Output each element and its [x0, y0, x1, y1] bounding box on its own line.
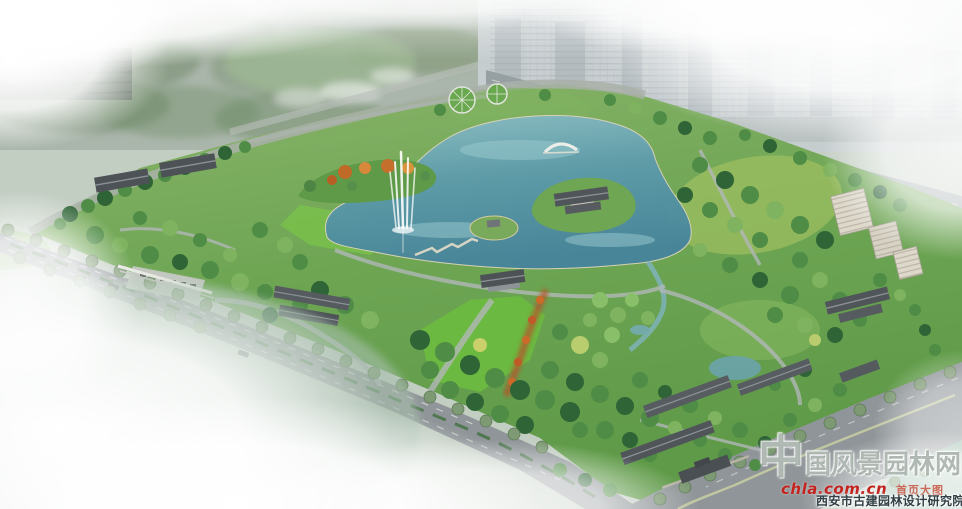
- rendering-canvas: [0, 0, 962, 509]
- lake-island: [470, 216, 518, 240]
- park-rendering-image: 中 国风景园林网 chla.com.cn 首页大图 西安市古建园林设计研究院: [0, 0, 962, 509]
